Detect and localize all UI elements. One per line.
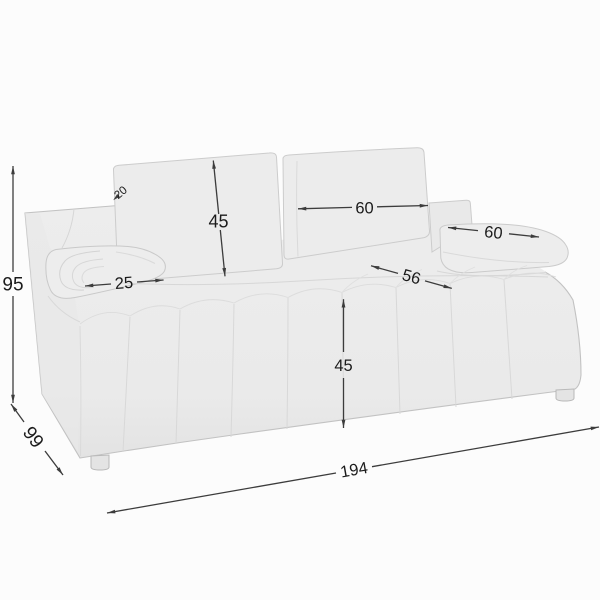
svg-text:60: 60 bbox=[483, 223, 503, 243]
svg-text:25: 25 bbox=[114, 274, 134, 293]
svg-text:60: 60 bbox=[355, 200, 373, 218]
svg-text:45: 45 bbox=[334, 357, 352, 375]
svg-text:45: 45 bbox=[208, 212, 228, 232]
svg-text:95: 95 bbox=[2, 275, 23, 296]
